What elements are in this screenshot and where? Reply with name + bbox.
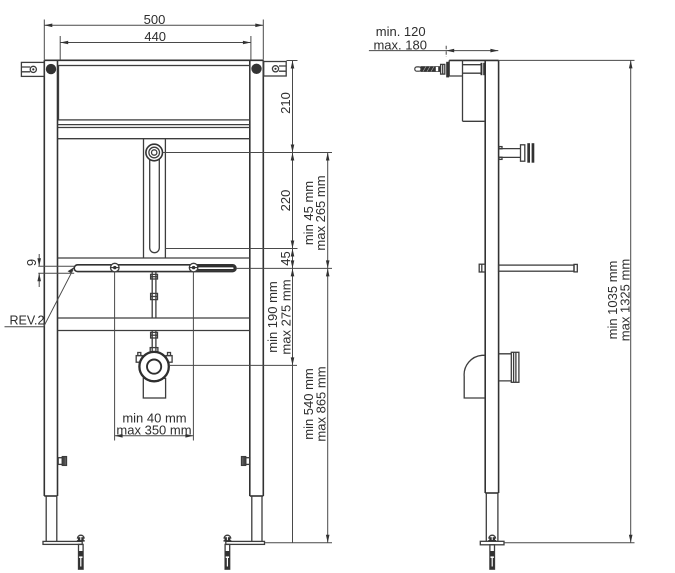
svg-text:210: 210	[278, 92, 293, 114]
svg-text:max 865 mm: max 865 mm	[314, 366, 329, 441]
svg-text:max 265 mm: max 265 mm	[313, 175, 328, 250]
svg-text:500: 500	[144, 12, 166, 27]
svg-text:max 350 mm: max 350 mm	[116, 423, 191, 438]
svg-text:REV.2: REV.2	[10, 314, 45, 328]
svg-text:220: 220	[278, 190, 293, 212]
svg-text:max. 180: max. 180	[373, 37, 426, 52]
svg-text:45: 45	[278, 251, 293, 265]
svg-text:440: 440	[144, 29, 166, 44]
svg-text:9: 9	[24, 259, 39, 266]
svg-text:max 1325 mm: max 1325 mm	[617, 259, 632, 341]
svg-text:max 275 mm: max 275 mm	[278, 279, 293, 354]
